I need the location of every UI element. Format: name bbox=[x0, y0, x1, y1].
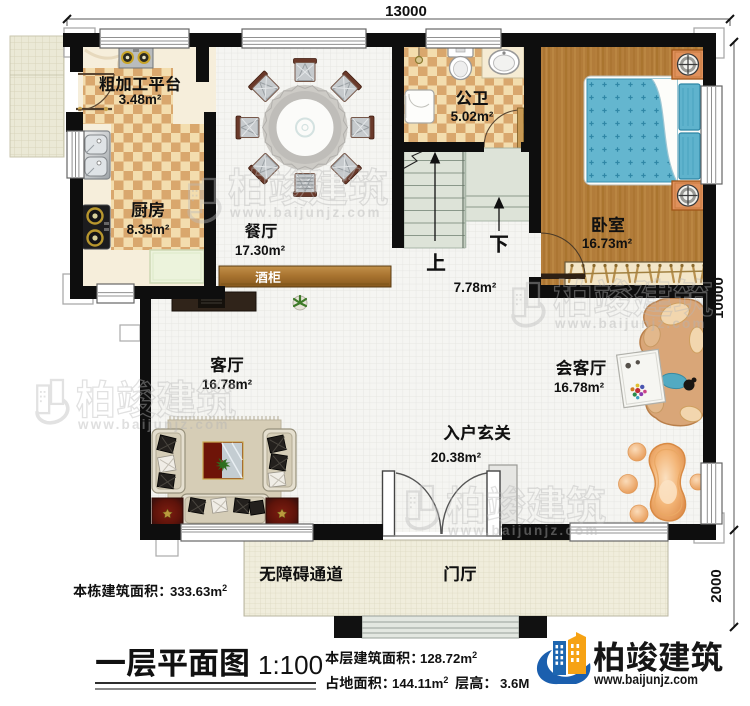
svg-text:16.78m²: 16.78m² bbox=[202, 377, 253, 392]
svg-text:128.72m2: 128.72m2 bbox=[420, 650, 477, 666]
svg-text:3.48m²: 3.48m² bbox=[119, 92, 162, 107]
svg-text:5.02m²: 5.02m² bbox=[451, 109, 494, 124]
svg-text:2000: 2000 bbox=[708, 569, 725, 602]
svg-text:7.78m²: 7.78m² bbox=[454, 280, 497, 295]
svg-text:www.baijunjz.com: www.baijunjz.com bbox=[593, 671, 698, 687]
svg-text:144.11m2: 144.11m2 bbox=[392, 675, 448, 691]
svg-text:3.6M: 3.6M bbox=[500, 676, 529, 691]
svg-text:17.30m²: 17.30m² bbox=[235, 243, 286, 258]
svg-text:13000: 13000 bbox=[385, 3, 427, 20]
svg-text:1:100: 1:100 bbox=[258, 650, 323, 680]
svg-text:www.baijunjz.com: www.baijunjz.com bbox=[554, 316, 707, 331]
svg-text:www.baijunjz.com: www.baijunjz.com bbox=[77, 417, 230, 432]
svg-text:www.baijunjz.com: www.baijunjz.com bbox=[229, 205, 382, 220]
svg-text:10000: 10000 bbox=[710, 277, 727, 319]
svg-text:www.baijunjz.com: www.baijunjz.com bbox=[447, 523, 600, 538]
svg-text:16.78m²: 16.78m² bbox=[554, 380, 605, 395]
svg-text:16.73m²: 16.73m² bbox=[582, 236, 633, 251]
svg-text:20.38m²: 20.38m² bbox=[431, 450, 482, 465]
svg-text:333.63m2: 333.63m2 bbox=[170, 583, 227, 599]
svg-text:8.35m²: 8.35m² bbox=[127, 222, 170, 237]
